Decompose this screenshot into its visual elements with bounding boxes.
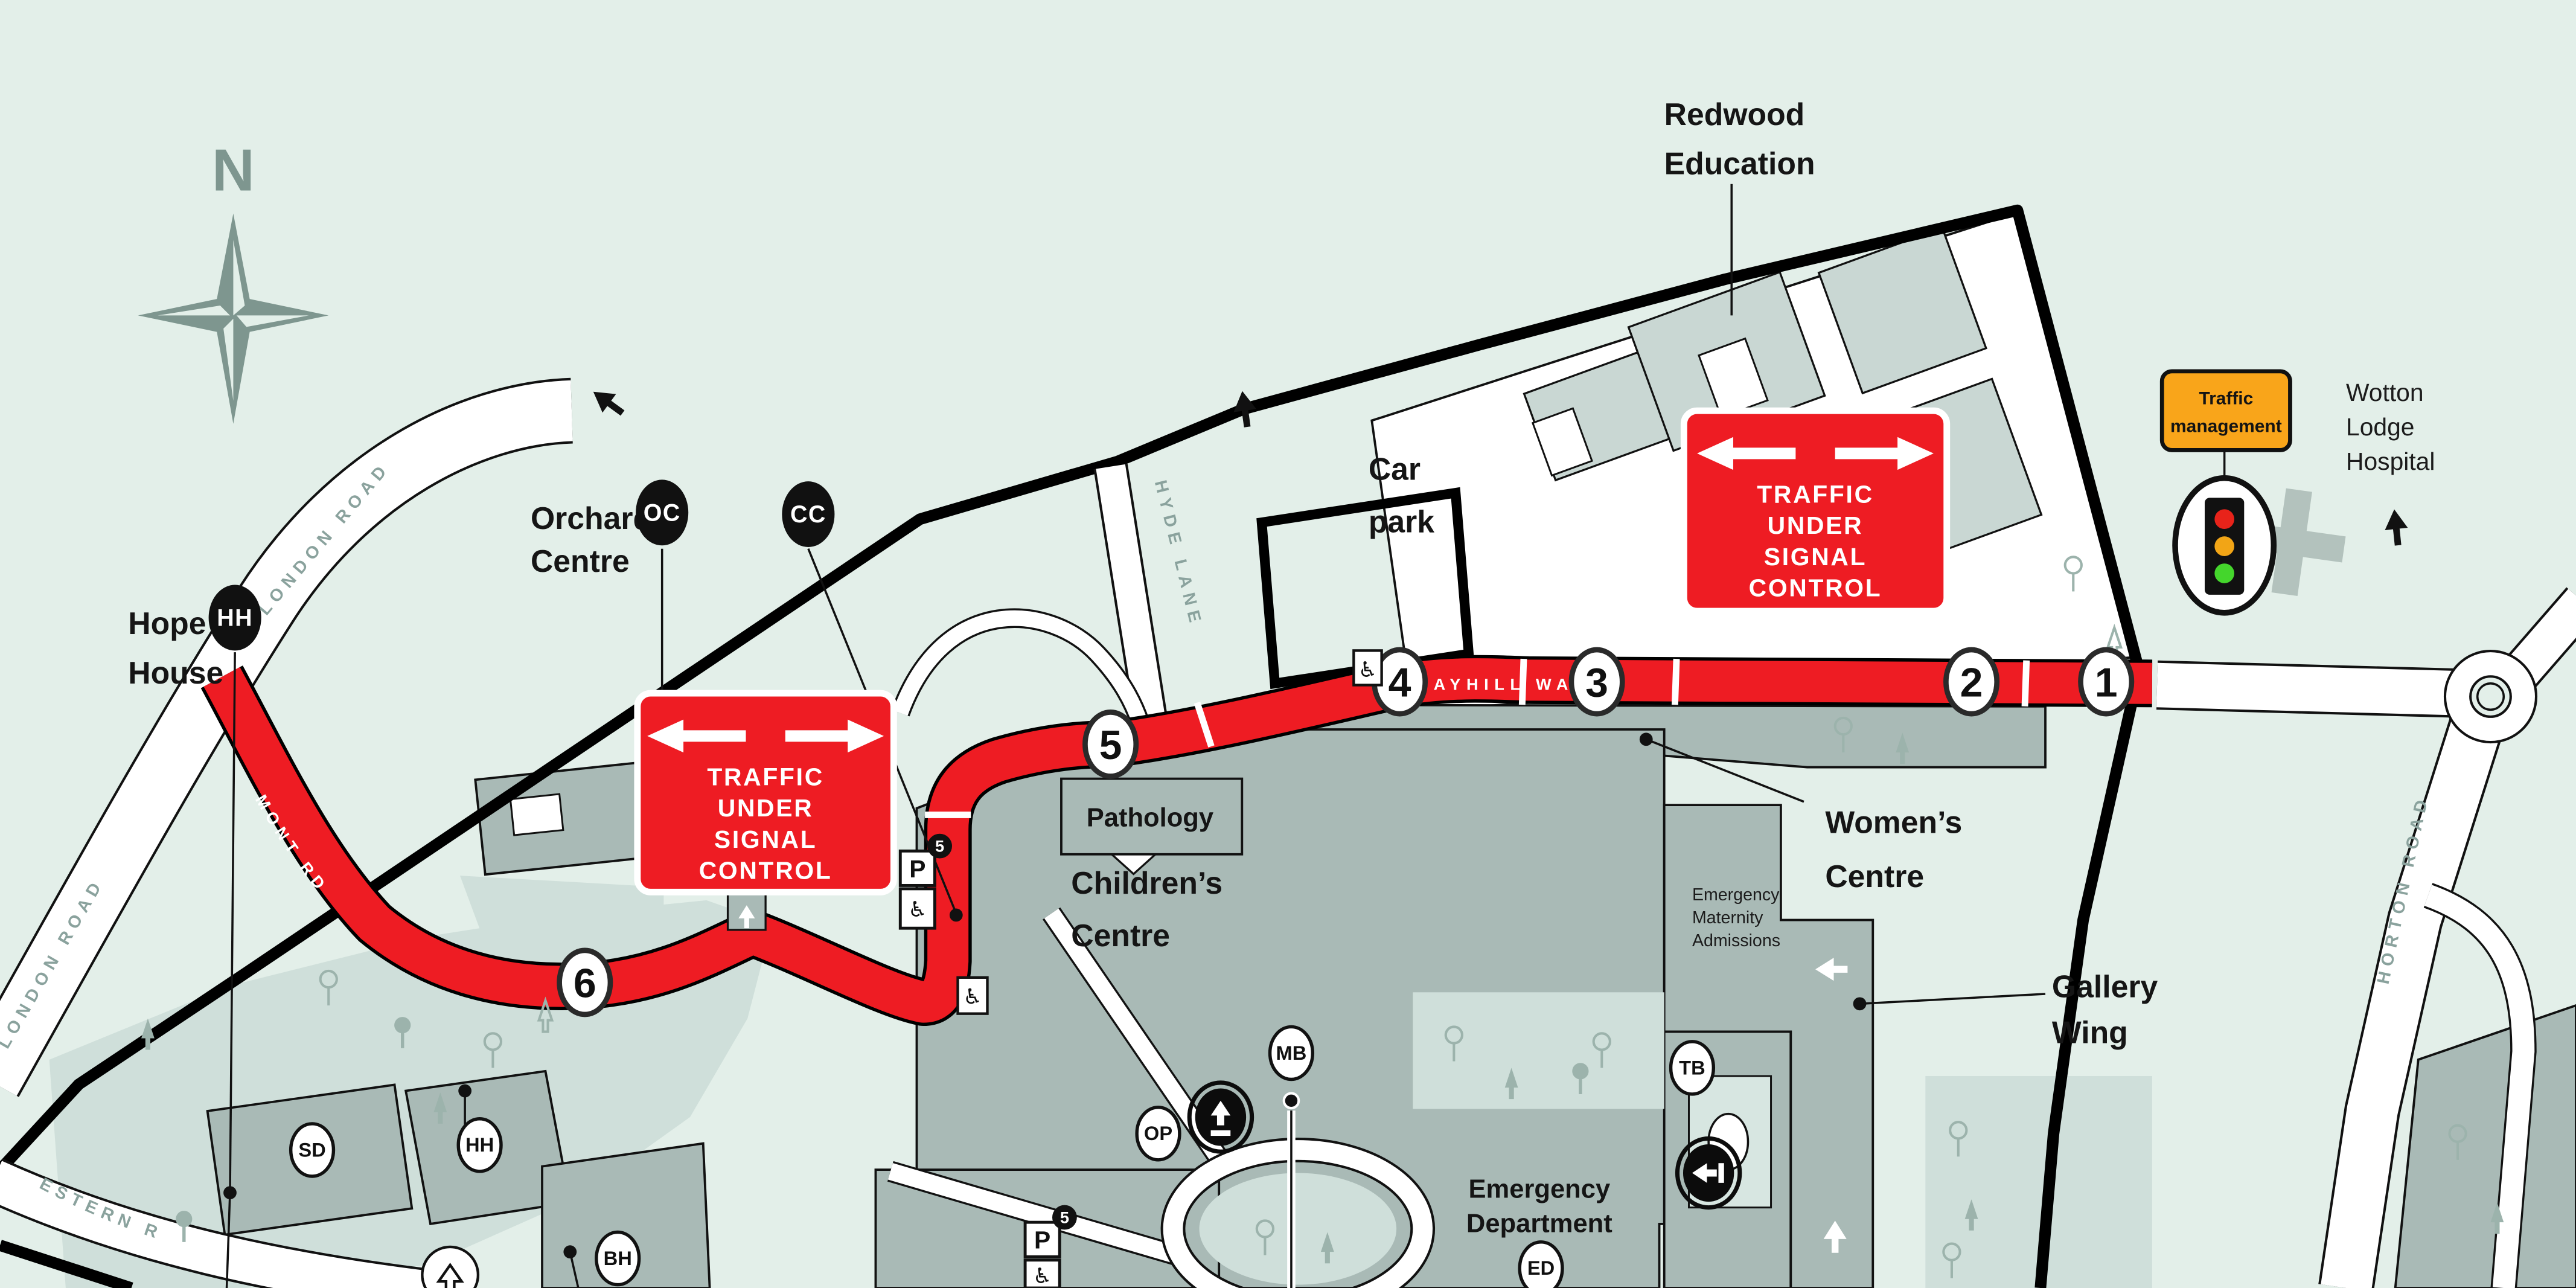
- sign-line: TRAFFIC: [707, 763, 824, 790]
- badge-mb: MB: [1276, 1042, 1307, 1064]
- traffic-management-badge: Traffic management: [2162, 371, 2290, 450]
- sign-line: UNDER: [718, 794, 814, 822]
- sign-line: CONTROL: [1749, 574, 1882, 602]
- badge-tb: TB: [1679, 1056, 1705, 1078]
- mayhill-way-label: MAYHILL WAY: [1414, 675, 1589, 694]
- stop-6: 6: [574, 960, 596, 1006]
- badge-hh: HH: [465, 1133, 494, 1156]
- sign-line: CONTROL: [699, 857, 833, 885]
- parking-icon: P: [909, 855, 925, 883]
- sign-line: TRAFFIC: [1757, 481, 1874, 508]
- courtyard-mid: [1413, 992, 1664, 1109]
- orchard-centre-label2: Centre: [531, 543, 630, 578]
- signal-control-sign-east: TRAFFIC UNDER SIGNAL CONTROL: [1684, 411, 1946, 611]
- orchard-centre-label: Orchard: [531, 501, 652, 536]
- stop-2: 2: [1960, 660, 1983, 706]
- traffic-management-line1: Traffic: [2199, 388, 2253, 408]
- parking-zone-number: 5: [935, 837, 944, 856]
- compass-north-label: N: [212, 137, 255, 203]
- stop-1: 1: [2095, 660, 2118, 706]
- gallery-wing-label2: Wing: [2052, 1015, 2128, 1050]
- womens-centre-label2: Centre: [1825, 859, 1924, 894]
- hope-house-label: Hope: [128, 606, 206, 641]
- hope-house-label2: House: [128, 655, 223, 690]
- signal-control-sign-west: TRAFFIC UNDER SIGNAL CONTROL: [638, 693, 894, 892]
- building-cutout: [510, 794, 563, 835]
- childrens-centre-label2: Centre: [1071, 918, 1170, 953]
- pathology-label: Pathology: [1087, 803, 1213, 832]
- badge-bh: BH: [604, 1247, 632, 1269]
- wheelchair-icon: ♿: [1033, 1264, 1052, 1288]
- redwood-education-label2: Education: [1664, 146, 1815, 181]
- womens-centre-label: Women’s: [1825, 804, 1962, 839]
- emergency-department-label: Emergency: [1469, 1174, 1611, 1203]
- badge-ed: ED: [1527, 1257, 1555, 1279]
- emergency-maternity-label: Emergency: [1692, 885, 1780, 905]
- pin-hh: HH: [217, 605, 253, 632]
- traffic-management-line2: management: [2170, 417, 2282, 437]
- wotton-lodge-label3: Hospital: [2346, 447, 2435, 475]
- emergency-maternity-label3: Admissions: [1692, 931, 1780, 950]
- traffic-light-badge: [2175, 478, 2274, 613]
- hospital-traffic-map: CLAREMONT RD MAYHILL WAY GREAT WESTERN R…: [0, 0, 2576, 1288]
- badge-op: OP: [1144, 1122, 1172, 1144]
- wheelchair-icon: ♿: [1358, 658, 1378, 682]
- stop-5: 5: [1099, 722, 1122, 768]
- childrens-centre-label: Children’s: [1071, 865, 1222, 900]
- sign-line: SIGNAL: [1764, 543, 1867, 571]
- parking-icon: P: [1034, 1226, 1050, 1254]
- one-way-up-badge: [1189, 1083, 1251, 1152]
- car-park-label2: park: [1369, 504, 1434, 539]
- car-park-label: Car: [1369, 451, 1421, 486]
- map-canvas: CLAREMONT RD MAYHILL WAY GREAT WESTERN R…: [0, 0, 2576, 1288]
- one-way-left-badge: [1677, 1138, 1739, 1207]
- stop-3: 3: [1585, 660, 1608, 706]
- emergency-maternity-label2: Maternity: [1692, 908, 1763, 928]
- pin-cc: CC: [790, 501, 826, 528]
- wotton-lodge-label2: Lodge: [2346, 413, 2414, 441]
- entrance-marker: [728, 891, 766, 930]
- gallery-wing-label: Gallery: [2052, 969, 2158, 1004]
- pin-oc: OC: [644, 499, 681, 526]
- wotton-lodge-label: Wotton: [2346, 379, 2424, 406]
- emergency-department-label2: Department: [1466, 1210, 1612, 1238]
- sign-line: SIGNAL: [714, 825, 817, 853]
- wheelchair-icon: ♿: [963, 984, 982, 1009]
- badge-sd: SD: [298, 1138, 325, 1161]
- parking-zone-number: 5: [1060, 1208, 1069, 1227]
- redwood-education-label: Redwood: [1664, 97, 1805, 132]
- stop-4: 4: [1389, 660, 1411, 706]
- wheelchair-icon: ♿: [908, 897, 927, 922]
- sign-line: UNDER: [1768, 511, 1864, 539]
